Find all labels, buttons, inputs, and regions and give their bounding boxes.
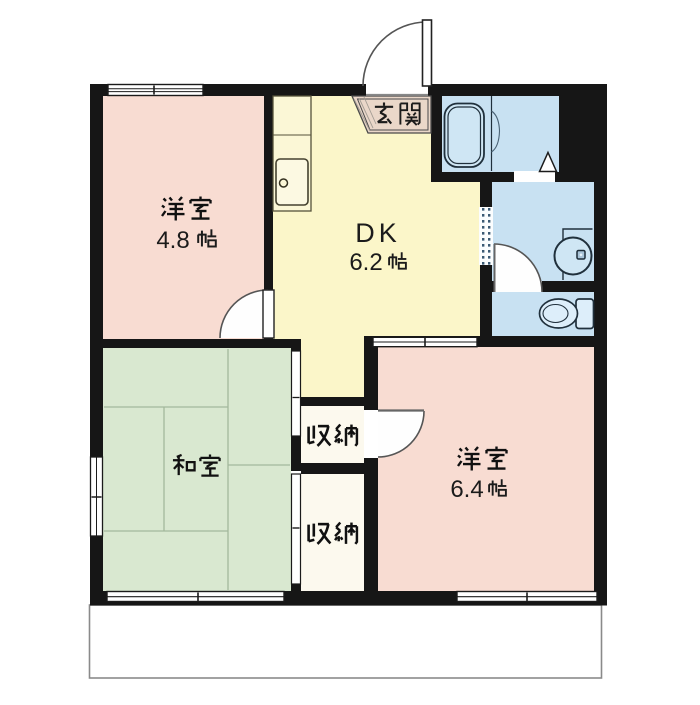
svg-text:4.8: 4.8	[156, 227, 189, 254]
svg-text:DK: DK	[355, 218, 401, 248]
svg-text:6.4: 6.4	[450, 476, 483, 503]
svg-text:6.2: 6.2	[349, 249, 382, 276]
